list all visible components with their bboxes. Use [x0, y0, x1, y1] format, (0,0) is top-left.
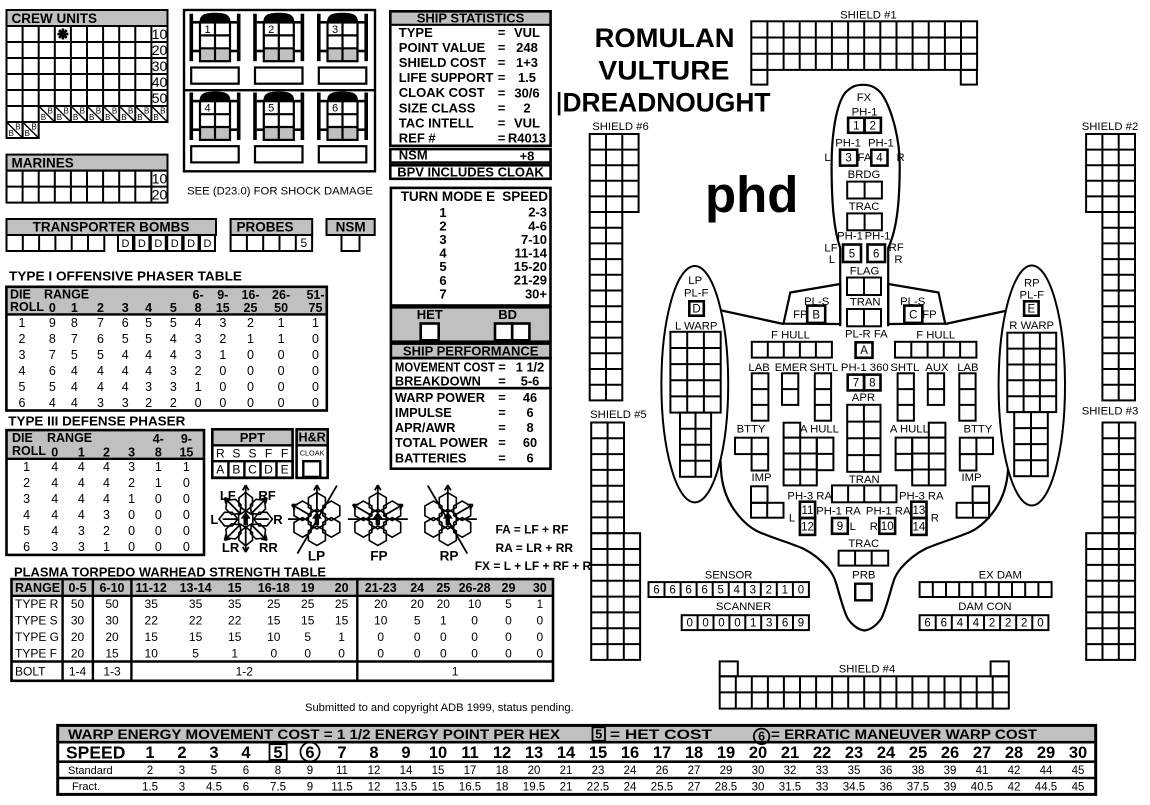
svg-text:D: D [204, 238, 212, 250]
svg-text:0: 0 [155, 540, 162, 554]
svg-text:5: 5 [192, 646, 199, 660]
svg-text:0: 0 [51, 446, 58, 460]
svg-text:ROLL: ROLL [10, 300, 44, 314]
svg-text:1: 1 [247, 332, 254, 346]
svg-text:IMP: IMP [961, 472, 981, 484]
svg-text:0: 0 [219, 364, 226, 378]
svg-text:0: 0 [155, 492, 162, 506]
svg-text:3: 3 [170, 380, 177, 394]
svg-text:3: 3 [122, 396, 129, 410]
svg-text:13.5: 13.5 [395, 781, 417, 793]
svg-text:L: L [829, 254, 835, 266]
svg-text:20: 20 [374, 597, 388, 611]
svg-text:TRAC: TRAC [848, 538, 879, 550]
svg-text:DREADNOUGHT: DREADNOUGHT [563, 87, 771, 117]
svg-text:SPEED: SPEED [66, 742, 125, 762]
svg-text:1: 1 [155, 476, 162, 490]
svg-text:0: 0 [536, 614, 543, 628]
svg-text:PPT: PPT [240, 430, 265, 445]
svg-text:C: C [909, 309, 917, 321]
svg-text:9-: 9- [181, 432, 192, 446]
svg-text:30: 30 [1069, 744, 1087, 762]
svg-text:1: 1 [231, 646, 238, 660]
svg-text:3: 3 [219, 316, 226, 330]
svg-text:2: 2 [766, 585, 772, 597]
svg-text:B: B [160, 107, 165, 116]
svg-text:13: 13 [525, 744, 543, 762]
svg-text:LF: LF [220, 488, 236, 503]
svg-text:F: F [265, 447, 272, 461]
svg-text:R: R [894, 254, 902, 266]
svg-text:SHTL: SHTL [890, 362, 919, 374]
svg-text:WARP ENERGY MOVEMENT COST = 1: WARP ENERGY MOVEMENT COST = 1 1/2 ENERGY… [68, 727, 560, 742]
svg-text:4: 4 [195, 316, 202, 330]
svg-text:B: B [812, 309, 820, 321]
svg-text:SENSOR: SENSOR [705, 570, 753, 582]
svg-text:4: 4 [23, 508, 30, 522]
svg-text:50: 50 [71, 597, 85, 611]
svg-text:RR: RR [259, 540, 278, 555]
svg-text:4: 4 [733, 585, 740, 597]
svg-text:TRAC: TRAC [849, 201, 880, 213]
svg-text:5: 5 [49, 380, 56, 394]
svg-text:RP: RP [440, 549, 459, 564]
svg-text:R: R [931, 513, 939, 525]
svg-text:11.5: 11.5 [331, 781, 353, 793]
svg-text:41: 41 [976, 765, 989, 777]
svg-text:2: 2 [989, 618, 995, 630]
svg-text:75: 75 [309, 301, 323, 315]
svg-text:BTTY: BTTY [963, 424, 992, 436]
svg-text:FA: FA [858, 152, 872, 164]
svg-text:6: 6 [243, 765, 249, 777]
svg-text:21: 21 [560, 765, 573, 777]
svg-text:0: 0 [183, 524, 190, 538]
svg-text:3: 3 [195, 332, 202, 346]
svg-text:B: B [57, 113, 62, 122]
svg-text:L WARP: L WARP [675, 320, 717, 332]
svg-text:25: 25 [301, 597, 315, 611]
svg-text:16.5: 16.5 [459, 781, 481, 793]
svg-text:15: 15 [216, 301, 230, 315]
svg-text:20: 20 [71, 646, 85, 660]
svg-text:4: 4 [103, 476, 110, 490]
svg-text:10: 10 [152, 171, 168, 187]
svg-text:4: 4 [145, 301, 152, 315]
svg-text:27: 27 [688, 765, 701, 777]
svg-text:2: 2 [869, 120, 875, 132]
svg-text:50: 50 [105, 597, 119, 611]
svg-text:= HET COST: = HET COST [610, 727, 713, 742]
svg-text:9: 9 [798, 618, 804, 630]
svg-text:11: 11 [802, 505, 814, 517]
svg-text:4: 4 [103, 492, 110, 506]
svg-text:15: 15 [228, 630, 242, 644]
svg-text:0: 0 [440, 630, 447, 644]
svg-text:FX: FX [857, 92, 872, 104]
svg-text:0: 0 [312, 380, 319, 394]
svg-text:6: 6 [526, 405, 533, 420]
svg-text:0: 0 [414, 646, 421, 660]
svg-text:4: 4 [51, 460, 58, 474]
svg-text:1: 1 [23, 460, 30, 474]
svg-text:6: 6 [243, 781, 249, 793]
svg-text:BATTERIES: BATTERIES [395, 450, 467, 465]
svg-text:= ERRATIC MANEUVER WARP COST: = ERRATIC MANEUVER WARP COST [771, 727, 1038, 742]
svg-text:B: B [47, 107, 52, 116]
svg-text:0: 0 [471, 614, 478, 628]
svg-text:0: 0 [312, 364, 319, 378]
svg-text:14: 14 [557, 744, 576, 762]
svg-text:6-10: 6-10 [99, 581, 124, 595]
svg-text:CLOAK COST: CLOAK COST [399, 85, 485, 100]
svg-text:1: 1 [536, 597, 543, 611]
svg-text:0: 0 [440, 646, 447, 660]
svg-text:24: 24 [877, 744, 896, 762]
svg-text:SHIELD COST: SHIELD COST [399, 55, 486, 70]
svg-text:13-14: 13-14 [180, 581, 212, 595]
svg-text:APR: APR [852, 392, 875, 404]
svg-text:0: 0 [278, 348, 285, 362]
svg-text:4: 4 [103, 460, 110, 474]
svg-text:0: 0 [247, 348, 254, 362]
svg-text:4: 4 [51, 492, 58, 506]
svg-text:4: 4 [973, 618, 980, 630]
svg-text:4: 4 [204, 103, 210, 115]
svg-text:=: = [498, 70, 506, 85]
svg-text:50: 50 [274, 301, 288, 315]
svg-text:TYPE R: TYPE R [15, 597, 59, 611]
svg-text:0: 0 [49, 301, 56, 315]
svg-text:D: D [138, 238, 146, 250]
svg-text:L: L [850, 521, 856, 533]
svg-text:20: 20 [749, 744, 767, 762]
svg-text:15: 15 [228, 581, 242, 595]
svg-text:D: D [154, 238, 162, 250]
svg-text:R: R [216, 447, 225, 461]
svg-text:R: R [870, 521, 878, 533]
svg-text:5-6: 5-6 [521, 373, 540, 388]
svg-text:15: 15 [589, 744, 607, 762]
svg-text:TOTAL POWER: TOTAL POWER [395, 435, 488, 450]
svg-text:11: 11 [336, 765, 348, 777]
svg-text:22: 22 [813, 744, 831, 762]
svg-text:LP: LP [688, 275, 702, 287]
svg-text:50: 50 [152, 90, 168, 106]
svg-text:15: 15 [301, 614, 315, 628]
svg-text:15: 15 [432, 765, 445, 777]
svg-text:BRDG: BRDG [848, 169, 881, 181]
svg-text:0: 0 [128, 524, 135, 538]
svg-text:1+3: 1+3 [516, 55, 538, 70]
svg-text:TRAN: TRAN [849, 474, 880, 486]
svg-text:R4013: R4013 [508, 131, 546, 146]
svg-text:25: 25 [244, 301, 258, 315]
svg-text:1: 1 [103, 540, 110, 554]
svg-text:1: 1 [78, 446, 85, 460]
svg-text:2: 2 [1005, 618, 1011, 630]
svg-text:A HULL: A HULL [800, 424, 839, 436]
svg-text:0: 0 [219, 380, 226, 394]
svg-text:18: 18 [685, 744, 703, 762]
svg-text:TRANSPORTER BOMBS: TRANSPORTER BOMBS [33, 220, 190, 235]
svg-text:A: A [860, 345, 868, 357]
svg-text:7: 7 [853, 378, 859, 390]
svg-text:3: 3 [179, 781, 185, 793]
svg-text:1-4: 1-4 [69, 664, 87, 678]
svg-text:42: 42 [1008, 765, 1021, 777]
svg-text:S: S [232, 447, 240, 461]
svg-text:14: 14 [913, 522, 926, 534]
svg-text:2: 2 [103, 524, 110, 538]
svg-text:4: 4 [122, 364, 129, 378]
svg-text:TYPE I OFFENSIVE PHASER TABLE: TYPE I OFFENSIVE PHASER TABLE [9, 269, 242, 284]
svg-text:Fract.: Fract. [72, 781, 100, 793]
svg-text:1: 1 [204, 24, 210, 36]
svg-text:4: 4 [51, 524, 58, 538]
svg-text:3: 3 [766, 618, 772, 630]
svg-text:2: 2 [268, 24, 274, 36]
svg-text:FP: FP [922, 309, 936, 321]
svg-text:19: 19 [717, 744, 735, 762]
svg-text:=: = [498, 405, 505, 420]
svg-text:7: 7 [97, 316, 104, 330]
svg-text:4: 4 [97, 380, 104, 394]
svg-text:3: 3 [19, 348, 26, 362]
svg-text:SIZE CLASS: SIZE CLASS [399, 100, 476, 115]
svg-text:17: 17 [464, 765, 477, 777]
svg-text:0: 0 [686, 618, 692, 630]
svg-text:B: B [80, 107, 85, 116]
svg-text:PH-1: PH-1 [835, 138, 861, 150]
svg-text:30: 30 [152, 58, 168, 74]
svg-text:0: 0 [247, 396, 254, 410]
svg-text:1: 1 [19, 316, 26, 330]
svg-text:POINT VALUE: POINT VALUE [399, 40, 486, 55]
svg-text:22: 22 [228, 614, 242, 628]
svg-text:5: 5 [301, 236, 308, 250]
svg-text:FP: FP [793, 309, 807, 321]
svg-text:PLASMA TORPEDO WARHEAD STRENGT: PLASMA TORPEDO WARHEAD STRENGTH TABLE [14, 565, 326, 580]
svg-text:5: 5 [595, 727, 602, 741]
svg-text:D: D [122, 238, 130, 250]
svg-text:28: 28 [1005, 744, 1023, 762]
svg-text:SHIELD #3: SHIELD #3 [1082, 406, 1139, 418]
svg-text:2: 2 [523, 100, 530, 115]
svg-text:1: 1 [155, 460, 162, 474]
svg-text:SHIELD #4: SHIELD #4 [839, 664, 896, 676]
svg-text:5: 5 [849, 248, 855, 260]
svg-text:19: 19 [301, 581, 315, 595]
svg-text:6: 6 [653, 585, 659, 597]
svg-text:PH-1: PH-1 [865, 231, 891, 243]
svg-text:F: F [281, 447, 288, 461]
svg-text:1: 1 [338, 630, 345, 644]
svg-text:36: 36 [880, 781, 893, 793]
svg-text:1.5: 1.5 [518, 70, 536, 85]
svg-text:6: 6 [305, 744, 314, 762]
svg-text:35: 35 [189, 597, 203, 611]
svg-text:4: 4 [71, 364, 78, 378]
svg-text:36: 36 [880, 765, 893, 777]
svg-text:TYPE III DEFENSE PHASER: TYPE III DEFENSE PHASER [8, 414, 186, 429]
svg-text:TAC INTELL: TAC INTELL [399, 115, 474, 130]
svg-text:27: 27 [973, 744, 991, 762]
svg-text:4: 4 [170, 348, 177, 362]
svg-text:4: 4 [51, 508, 58, 522]
svg-text:Submitted to and copyright ADB: Submitted to and copyright ADB 1999, sta… [305, 702, 574, 714]
svg-text:PH-1 RA: PH-1 RA [816, 505, 861, 517]
svg-text:D: D [264, 463, 273, 477]
svg-text:6: 6 [669, 585, 675, 597]
svg-text:BD: BD [498, 307, 517, 322]
svg-text:3: 3 [97, 396, 104, 410]
svg-text:4: 4 [71, 396, 78, 410]
svg-text:1: 1 [195, 380, 202, 394]
svg-text:0: 0 [304, 646, 311, 660]
svg-text:5: 5 [717, 585, 723, 597]
svg-text:E: E [281, 463, 289, 477]
svg-text:19.5: 19.5 [523, 781, 545, 793]
svg-text:20: 20 [411, 597, 425, 611]
svg-text:44.5: 44.5 [1035, 781, 1057, 793]
svg-text:4: 4 [19, 364, 26, 378]
svg-text:TYPE S: TYPE S [15, 614, 58, 628]
svg-text:4: 4 [78, 492, 85, 506]
svg-text:0: 0 [798, 585, 804, 597]
svg-text:22.5: 22.5 [587, 781, 609, 793]
svg-text:VUL: VUL [514, 116, 540, 131]
svg-text:RANGE: RANGE [15, 581, 60, 595]
svg-text:1: 1 [853, 120, 859, 132]
svg-text:6: 6 [941, 618, 947, 630]
svg-text:0: 0 [536, 630, 543, 644]
svg-text:PH-1: PH-1 [868, 138, 894, 150]
svg-text:25: 25 [436, 581, 450, 595]
svg-text:2: 2 [177, 744, 186, 762]
svg-text:3: 3 [750, 585, 756, 597]
svg-text:21: 21 [560, 781, 573, 793]
svg-text:22: 22 [145, 614, 159, 628]
svg-text:0: 0 [183, 508, 190, 522]
svg-text:1: 1 [128, 492, 135, 506]
svg-text:SPEED: SPEED [502, 189, 548, 204]
svg-text:2: 2 [128, 476, 135, 490]
svg-text:25: 25 [909, 744, 927, 762]
svg-text:0: 0 [718, 618, 724, 630]
svg-text:FLAG: FLAG [850, 265, 880, 277]
svg-text:1: 1 [71, 301, 78, 315]
svg-text:1: 1 [219, 348, 226, 362]
svg-text:40: 40 [152, 74, 168, 90]
svg-text:SHIELD #1: SHIELD #1 [840, 9, 897, 21]
svg-text:B: B [105, 113, 110, 122]
svg-text:10: 10 [468, 597, 482, 611]
svg-text:=: = [498, 420, 505, 435]
svg-text:20: 20 [152, 187, 168, 203]
svg-text:10: 10 [881, 521, 894, 533]
svg-text:10: 10 [267, 630, 281, 644]
svg-text:1-2: 1-2 [236, 664, 254, 678]
svg-text:6: 6 [758, 729, 765, 743]
svg-text:15: 15 [179, 446, 193, 460]
svg-text:S: S [248, 447, 256, 461]
svg-text:L: L [210, 512, 218, 527]
svg-text:B: B [89, 113, 94, 122]
svg-text:2: 2 [219, 332, 226, 346]
svg-text:LF: LF [824, 242, 837, 254]
svg-text:0: 0 [278, 396, 285, 410]
svg-text:4: 4 [97, 364, 104, 378]
svg-text:15: 15 [105, 646, 119, 660]
svg-text:=: = [498, 390, 505, 405]
svg-text:26: 26 [656, 765, 669, 777]
svg-text:0: 0 [471, 646, 478, 660]
svg-text:4: 4 [51, 476, 58, 490]
svg-text:E: E [1027, 304, 1035, 316]
svg-text:MARINES: MARINES [12, 156, 74, 171]
svg-text:PRB: PRB [852, 570, 875, 582]
svg-text:0: 0 [505, 614, 512, 628]
svg-text:15: 15 [335, 614, 349, 628]
svg-text:B: B [153, 113, 158, 122]
svg-text:B: B [25, 129, 30, 138]
svg-text:44: 44 [1040, 765, 1053, 777]
svg-text:0: 0 [734, 618, 740, 630]
svg-text:NSM: NSM [399, 147, 428, 162]
svg-text:=: = [498, 373, 505, 388]
svg-text:B: B [96, 107, 101, 116]
svg-text:TYPE: TYPE [399, 25, 433, 40]
svg-text:4: 4 [122, 380, 129, 394]
svg-text:SHIELD #5: SHIELD #5 [590, 409, 647, 421]
svg-text:RANGE: RANGE [44, 287, 89, 301]
svg-text:1: 1 [750, 618, 756, 630]
svg-text:29: 29 [720, 765, 733, 777]
svg-text:5: 5 [122, 332, 129, 346]
svg-text:=: = [498, 40, 506, 55]
svg-text:9: 9 [307, 781, 313, 793]
svg-text:LP: LP [308, 549, 325, 564]
svg-text:5: 5 [71, 348, 78, 362]
svg-text:15: 15 [432, 781, 445, 793]
svg-text:20: 20 [71, 630, 85, 644]
svg-text:10: 10 [145, 646, 159, 660]
svg-text:AUX: AUX [925, 362, 949, 374]
svg-text:0: 0 [247, 364, 254, 378]
svg-text:B: B [112, 107, 117, 116]
svg-text:3: 3 [122, 301, 129, 315]
svg-text:3: 3 [78, 540, 85, 554]
svg-text:8: 8 [526, 420, 533, 435]
svg-text:TURN MODE E: TURN MODE E [401, 189, 496, 204]
svg-text:6: 6 [526, 450, 533, 465]
svg-text:5: 5 [145, 332, 152, 346]
svg-text:14: 14 [400, 765, 413, 777]
svg-text:REF #: REF # [399, 131, 437, 146]
svg-text:12: 12 [801, 522, 814, 534]
svg-text:26-: 26- [272, 288, 290, 302]
svg-text:4: 4 [876, 153, 883, 165]
svg-text:11-12: 11-12 [136, 581, 167, 595]
svg-text:21: 21 [781, 744, 799, 762]
svg-text:4: 4 [241, 744, 251, 762]
svg-text:6: 6 [873, 248, 879, 260]
svg-text:RA = LR + RR: RA = LR + RR [496, 541, 574, 555]
svg-text:6: 6 [332, 103, 338, 115]
svg-text:3: 3 [145, 380, 152, 394]
svg-text:6: 6 [782, 618, 788, 630]
